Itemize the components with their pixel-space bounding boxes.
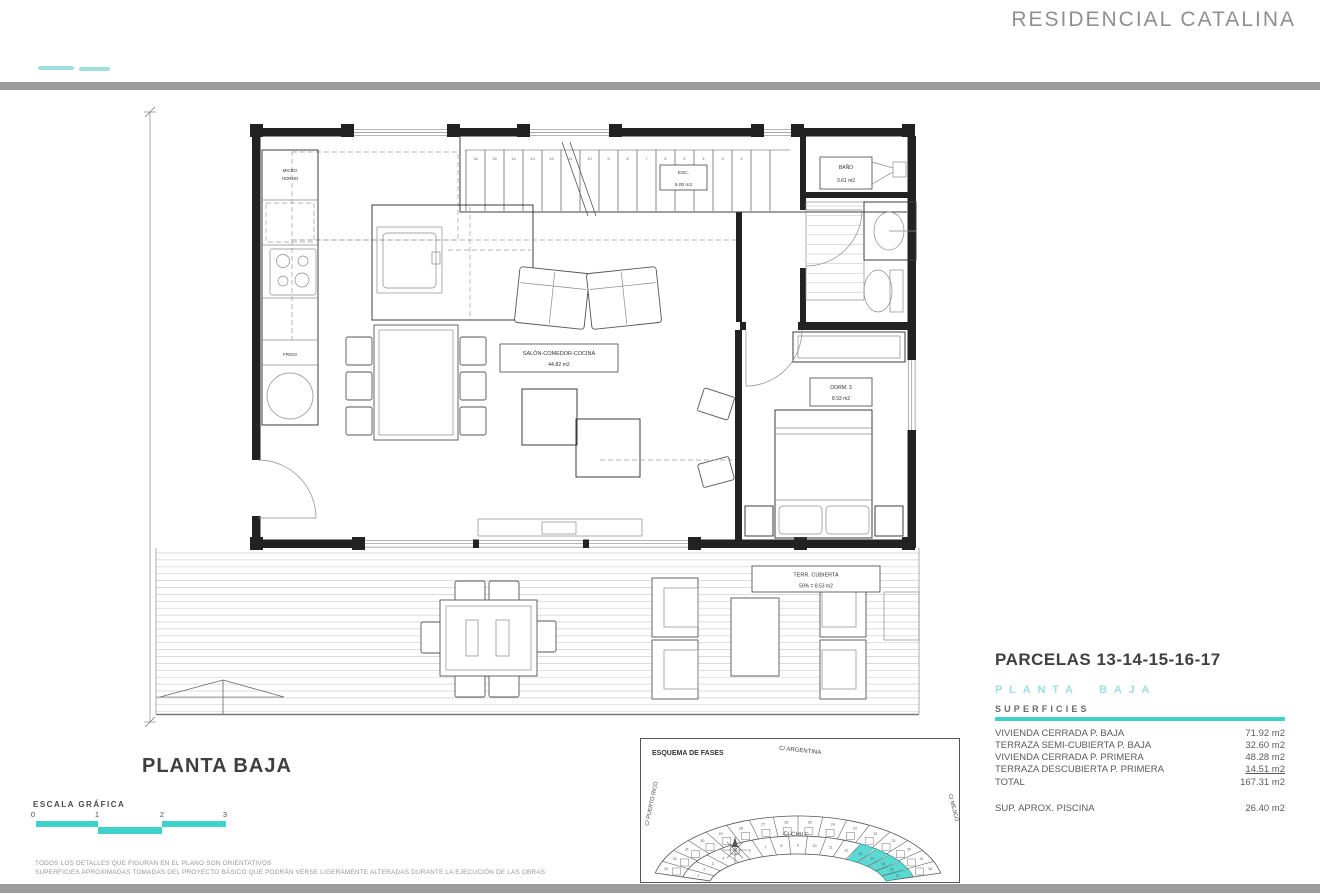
room-label-dorm3: DORM. 3 [830, 385, 852, 391]
scale-tick-1: 1 [95, 810, 99, 819]
room-area-salon: 44.82 m2 [548, 362, 570, 368]
stair-number: 4 [702, 156, 705, 161]
bottom-divider-bar [0, 884, 1320, 893]
table-row: VIVIENDA CERRADA P. BAJA71.92 m2 [995, 728, 1285, 740]
parcel-number: 26 [784, 821, 788, 825]
stair-number: 8 [626, 156, 629, 161]
table-row: VIVIENDA CERRADA P. PRIMERA48.28 m2 [995, 752, 1285, 764]
superficies-underline [995, 717, 1285, 721]
kitchen-label-frigo: FRIGO [283, 352, 297, 357]
surface-summary: PARCELAS 13-14-15-16-17 PLANTA BAJA SUPE… [995, 650, 1291, 815]
scale-bar-label: ESCALA GRÁFICA [33, 800, 125, 809]
parcel-number: 29 [719, 832, 723, 836]
table-row: TERRAZA SEMI-CUBIERTA P. BAJA32.60 m2 [995, 740, 1285, 752]
room-area-dorm3: 8.93 m2 [832, 396, 850, 402]
surface-table: VIVIENDA CERRADA P. BAJA71.92 m2 TERRAZA… [995, 728, 1285, 816]
parcel-number: 32 [673, 857, 677, 861]
interior-walls [735, 136, 915, 548]
row-label: VIVIENDA CERRADA P. PRIMERA [995, 752, 1144, 764]
stair-number: 7 [645, 156, 648, 161]
parcel-number: 10 [813, 844, 817, 848]
living-room-label: SALÓN-COMEDOR-COCINA 44.82 m2 [500, 344, 618, 372]
parcel-number: 14 [871, 856, 875, 860]
stair-number: 13 [530, 156, 535, 161]
row-value: 167.31 m2 [1240, 777, 1285, 789]
parcel-number: 7 [764, 846, 766, 850]
row-value: 32.60 m2 [1245, 740, 1285, 752]
kitchen-island [372, 205, 533, 320]
room-label-salon: SALÓN-COMEDOR-COCINA [523, 350, 596, 357]
superficies-heading: SUPERFICIES [995, 704, 1291, 714]
dimension-line [144, 107, 156, 727]
disclaimer-line-2: SUPERFICIES APROXIMADAS TOMADAS DEL PROY… [35, 869, 545, 878]
stair-number: 10 [587, 156, 592, 161]
row-label: VIVIENDA CERRADA P. BAJA [995, 728, 1124, 740]
parcelas-title: PARCELAS 13-14-15-16-17 [995, 650, 1291, 670]
site-plan-title: ESQUEMA DE FASES [652, 750, 724, 757]
parcel-number: 6 [749, 848, 751, 852]
stair-number: 6 [664, 156, 667, 161]
parcel-number: 11 [829, 846, 833, 850]
stair-number: 12 [549, 156, 554, 161]
stair-number: 11 [568, 156, 573, 161]
parcel-number: 24 [831, 823, 835, 827]
kitchen-label-horno: HORNO [282, 176, 299, 181]
logo-mark-right [79, 67, 110, 71]
scale-tick-2: 2 [160, 810, 164, 819]
bedroom-door-arc [746, 330, 802, 386]
parcel-number: 28 [739, 826, 743, 830]
sideboard [478, 519, 642, 536]
parcel-number: 30 [700, 839, 704, 843]
parcel-number: 25 [808, 821, 812, 825]
scale-tick-3: 3 [223, 810, 227, 819]
scale-segment-3 [162, 821, 226, 827]
row-label: TERRAZA DESCUBIERTA P. PRIMERA [995, 764, 1164, 776]
parcel-number: 15 [881, 862, 885, 866]
row-value: 26.40 m2 [1245, 803, 1285, 815]
room-area-terraza: 50% = 8.53 m2 [799, 584, 833, 590]
table-row: TERRAZA DESCUBIERTA P. PRIMERA14.51 m2 [995, 764, 1285, 776]
parcel-number: 21 [892, 839, 896, 843]
bedroom: DORM. 3 8.93 m2 [745, 330, 905, 538]
bathroom-door-arc [806, 210, 862, 266]
scale-segment-2 [98, 827, 162, 834]
terrace-furniture [421, 578, 866, 699]
floor-plan-drawing: 1615141312111098765432 ESC. 5.00 m2 1 MI… [130, 100, 940, 730]
parcel-number: 2 [703, 868, 705, 872]
stair-number: 3 [721, 156, 724, 161]
parcel-number: 12 [844, 848, 848, 852]
row-value: 48.28 m2 [1245, 752, 1285, 764]
parcel-number: 18 [928, 867, 932, 871]
row-label: SUP. APROX. PISCINA [995, 803, 1095, 815]
parcel-number: 3 [712, 862, 714, 866]
parcel-number: 20 [907, 847, 911, 851]
parcel-number: 4 [722, 856, 724, 860]
parcel-number: 9 [797, 843, 799, 847]
row-value: 71.92 m2 [1245, 728, 1285, 740]
parcel-number: 31 [685, 847, 689, 851]
room-label-bano: BAÑO [839, 164, 853, 171]
kitchen-label-micro: MICRO [283, 168, 298, 173]
armchairs [600, 388, 735, 488]
entry-door-arc [258, 460, 316, 518]
table-row-total: TOTAL167.31 m2 [995, 777, 1285, 789]
parcel-number: 23 [853, 826, 857, 830]
row-value: 14.51 m2 [1245, 764, 1285, 776]
stair-number: 16 [473, 156, 478, 161]
stair-number: 9 [607, 156, 610, 161]
parcel-number: 22 [873, 832, 877, 836]
terrace-label: TERR. CUBIERTA 50% = 8.53 m2 [752, 566, 880, 592]
logo-mark-left [38, 66, 74, 70]
room-label-esc: ESC. [678, 170, 689, 176]
parcel-number: 16 [890, 868, 894, 872]
stair-number: 14 [511, 156, 516, 161]
disclaimer: TODOS LOS DETALLES QUE FIGURAN EN EL PLA… [35, 860, 545, 877]
room-area-esc: 5.00 m2 [675, 182, 693, 188]
plan-title: PLANTA BAJA [142, 755, 292, 778]
scale-segment-1 [36, 821, 98, 827]
parcel-number: 19 [919, 857, 923, 861]
room-area-bano: 3.61 m2 [837, 178, 855, 184]
parcel-number: 33 [664, 867, 668, 871]
kitchen: MICRO HORNO FRIGO [258, 150, 318, 518]
coffee-tables [522, 389, 640, 477]
row-label: TERRAZA SEMI-CUBIERTA P. BAJA [995, 740, 1151, 752]
parcel-number: 8 [780, 844, 782, 848]
row-label: TOTAL [995, 777, 1025, 789]
stair-number: 15 [492, 156, 497, 161]
planta-baja-subtitle: PLANTA BAJA [995, 684, 1291, 696]
top-divider-bar [0, 82, 1320, 90]
plan-sheet: RESIDENCIAL CATALINA [0, 0, 1320, 895]
disclaimer-line-1: TODOS LOS DETALLES QUE FIGURAN EN EL PLA… [35, 860, 545, 869]
parcel-number: 17 [896, 874, 900, 878]
bathroom: BAÑO 3.61 m2 [806, 157, 916, 312]
development-title: RESIDENCIAL CATALINA [1011, 8, 1296, 32]
parcel-number: 13 [858, 852, 862, 856]
dining-table [346, 325, 486, 440]
room-label-terraza: TERR. CUBIERTA [793, 573, 839, 579]
scale-tick-0: 0 [31, 810, 35, 819]
stair-number: 2 [740, 156, 743, 161]
stair-number: 5 [683, 156, 686, 161]
parcel-number: 27 [761, 823, 765, 827]
sofa [514, 266, 661, 329]
table-row-piscina: SUP. APROX. PISCINA26.40 m2 [995, 803, 1285, 815]
parcel-number: 1 [697, 874, 699, 878]
site-plan: ESQUEMA DE FASES C/ ARGENTINA C/ PUERTO … [640, 738, 960, 883]
